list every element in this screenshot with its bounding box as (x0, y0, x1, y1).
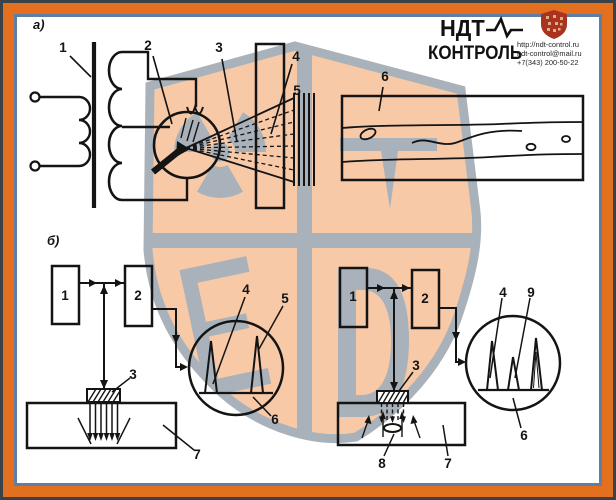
callout-3-beam: 3 (215, 40, 223, 55)
callout-bl-5-bottom-echo: 5 (281, 291, 289, 306)
company-shield-icon (541, 10, 567, 39)
callout-br-8-defect: 8 (378, 456, 386, 471)
secondary-coil (109, 52, 122, 200)
primary-coil (79, 97, 90, 166)
ultrasonic-beam-r (362, 403, 420, 438)
callout-bl-2-receiver: 2 (134, 288, 142, 303)
callout-5-film: 5 (293, 83, 301, 98)
defect (384, 424, 401, 432)
contact-phone: +7(343) 200-50-22 (517, 58, 582, 67)
panel-b-label: б) (47, 233, 59, 248)
contact-info: http://ndt-control.ru ndt-control@mail.r… (517, 40, 582, 67)
callout-1-transformer: 1 (59, 40, 67, 55)
callout-br-9-defect-echo: 9 (527, 285, 535, 300)
transformer (31, 42, 197, 208)
panel-a-label: а) (33, 17, 45, 32)
logo-title-top: НДТ (440, 15, 485, 42)
defect-indications (359, 127, 570, 151)
scanned-figure-frame: а) (0, 0, 616, 500)
pulse-waveform-icon (486, 16, 524, 40)
signal-lines-r (367, 284, 466, 391)
test-object-plate (256, 44, 284, 208)
callout-bl-6-screen: 6 (271, 412, 279, 427)
screen-circle (189, 321, 283, 415)
film-lines (294, 93, 314, 186)
callout-6-radiograph: 6 (381, 69, 389, 84)
panel-b-left-leaders (112, 297, 283, 450)
callout-br-6-screen: 6 (520, 428, 528, 443)
contact-website: http://ndt-control.ru (517, 40, 582, 49)
callout-2-xray-tube: 2 (144, 38, 152, 53)
callout-bl-1-generator: 1 (61, 288, 69, 303)
callout-4-object: 4 (292, 49, 300, 64)
panel-b-right-ultrasonic-scheme: 1 2 3 4 9 6 7 8 (338, 268, 560, 471)
callout-br-1-generator: 1 (349, 289, 357, 304)
transducer-r (377, 391, 408, 403)
callout-br-3-transducer: 3 (412, 358, 420, 373)
radiograph (342, 96, 583, 180)
panel-b-left-ultrasonic-scheme: б) (27, 233, 289, 462)
diagram: а) (0, 0, 616, 500)
callout-br-4-initial-pulse: 4 (499, 285, 507, 300)
callout-bl-3-transducer: 3 (129, 367, 137, 382)
callout-bl-7-test-piece: 7 (193, 447, 201, 462)
logo-title-bottom: КОНТРОЛЬ (428, 42, 522, 65)
callout-br-2-receiver: 2 (421, 291, 429, 306)
callout-bl-4-initial-pulse: 4 (242, 282, 250, 297)
echo-peak-initial (205, 341, 217, 393)
screen-circle-r (466, 316, 560, 410)
callout-br-7-test-piece: 7 (444, 456, 452, 471)
contact-email: ndt-control@mail.ru (517, 49, 582, 58)
ultrasonic-beam (78, 403, 130, 444)
transducer (87, 389, 120, 402)
